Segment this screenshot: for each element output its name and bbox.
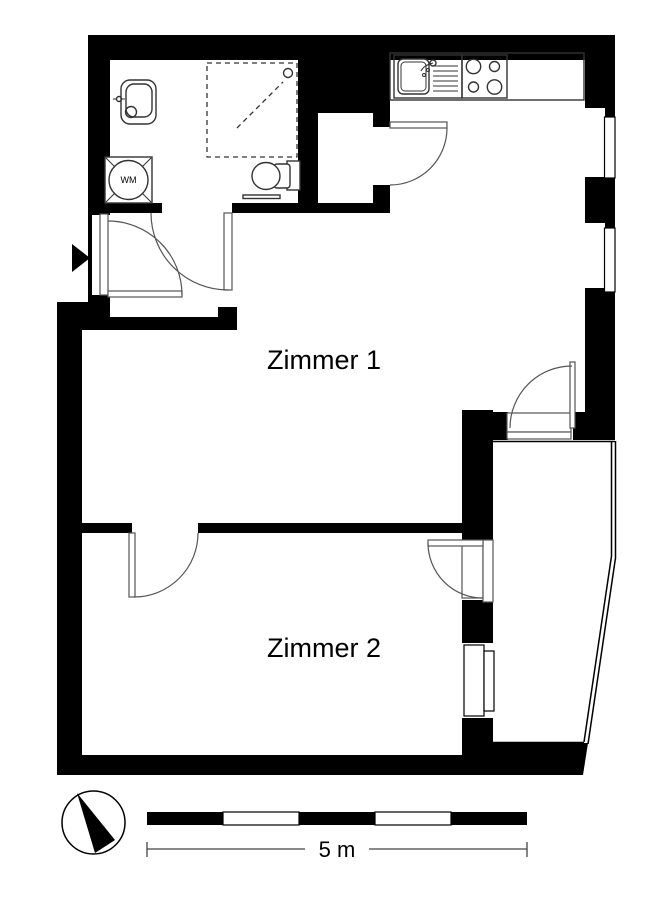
zimmer2-balcony-window	[462, 643, 494, 718]
stove-icon	[462, 55, 507, 98]
scale-dimension: 5 m	[147, 837, 527, 862]
shower-icon	[207, 63, 297, 157]
bathroom-door	[151, 213, 232, 290]
floor-plan-page: WM Zimmer 1 Zimmer 2	[0, 0, 672, 910]
entrance-arrow-icon	[72, 244, 90, 272]
scale-label: 5 m	[319, 837, 356, 862]
zimmer2-balcony-door	[428, 540, 493, 602]
window-2	[585, 223, 615, 292]
kitchen-sink-icon	[398, 59, 458, 94]
toilet-icon	[243, 161, 300, 199]
washing-machine-label: WM	[121, 175, 137, 185]
zimmer1-zimmer2-door	[129, 533, 198, 597]
north-arrow-icon	[62, 791, 125, 854]
floor-plan-svg: WM Zimmer 1 Zimmer 2	[0, 0, 672, 910]
room-label-zimmer1: Zimmer 1	[267, 345, 381, 375]
scale-bar	[147, 812, 527, 825]
zimmer1-balcony-door	[507, 362, 575, 439]
bathroom-sink-icon	[113, 80, 156, 124]
washing-machine-icon: WM	[105, 157, 152, 203]
window-1	[585, 108, 615, 178]
room-label-zimmer2: Zimmer 2	[267, 633, 381, 663]
entry-door	[100, 214, 182, 297]
outer-walls	[57, 35, 615, 775]
closet-door	[390, 122, 447, 185]
